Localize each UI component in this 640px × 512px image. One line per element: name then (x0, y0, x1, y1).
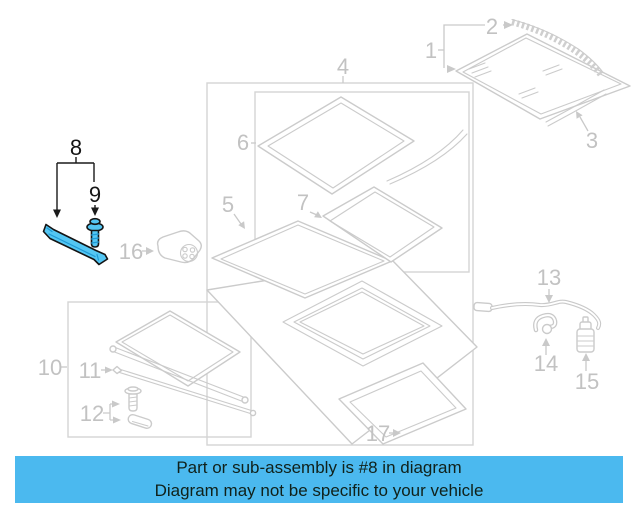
banner-line-2: Diagram may not be specific to your vehi… (155, 480, 484, 502)
callout-17: 17 (366, 421, 390, 446)
banner-line-1: Part or sub-assembly is #8 in diagram (176, 457, 461, 479)
callout-5: 5 (222, 192, 234, 217)
callout-12: 12 (80, 401, 104, 426)
part-15-drain-valve (577, 317, 594, 352)
callout-10: 10 (38, 355, 62, 380)
callout-13: 13 (537, 265, 561, 290)
callout-3: 3 (586, 128, 598, 153)
callout-6: 6 (237, 130, 249, 155)
highlight-banner: Part or sub-assembly is #8 in diagram Di… (15, 456, 623, 503)
callout-14: 14 (534, 351, 558, 376)
callout-8: 8 (70, 135, 82, 160)
parts-diagram-page: 1 2 3 4 5 6 7 10 11 12 13 14 15 16 17 8 … (0, 0, 640, 512)
parts-diagram: 1 2 3 4 5 6 7 10 11 12 13 14 15 16 17 8 … (0, 0, 640, 512)
callout-7: 7 (297, 190, 309, 215)
part-12-screw-and-clip (125, 387, 153, 429)
callout-15: 15 (575, 369, 599, 394)
part-9-screw-highlighted (87, 219, 103, 247)
callout-2: 2 (486, 14, 498, 39)
callout-11: 11 (79, 358, 102, 383)
part-14-clip (535, 315, 555, 333)
callout-9: 9 (89, 182, 101, 207)
callout-1: 1 (425, 38, 437, 63)
part-1-glass-panel (456, 34, 630, 119)
callout-4: 4 (337, 54, 349, 79)
callout-16: 16 (119, 239, 143, 264)
part-16-motor (158, 231, 202, 263)
